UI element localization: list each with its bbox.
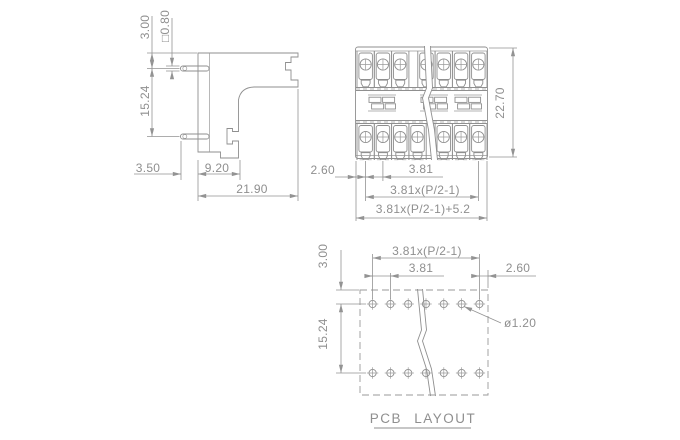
pcb-hole <box>474 367 485 378</box>
pcb-hole <box>438 298 449 309</box>
pcb-hole <box>403 298 414 309</box>
pcb-hole-row-bottom <box>367 367 485 378</box>
dim-side-total-depth: 21.90 <box>236 182 268 196</box>
pcb-hole <box>438 367 449 378</box>
side-pin-top <box>181 66 210 71</box>
pcb-hole <box>474 298 485 309</box>
pcb-hole <box>456 367 467 378</box>
terminal <box>452 51 469 88</box>
dim-pcb-row-offset: 3.00 <box>316 244 330 269</box>
terminal <box>357 124 374 161</box>
terminal <box>392 124 409 161</box>
wire-slots <box>454 95 482 111</box>
dim-front-height: 22.70 <box>493 87 507 119</box>
front-view: 22.70 2.60 3.81 3.81x(P/2-1) 3.81x(P/2-1… <box>310 46 517 221</box>
pcb-hole <box>385 367 396 378</box>
pcb-hole <box>367 298 378 309</box>
terminal <box>374 124 391 161</box>
pcb-hole <box>403 367 414 378</box>
dim-pcb-hole-diameter: ø1.20 <box>504 316 536 330</box>
dim-front-end-margin: 2.60 <box>310 163 335 177</box>
terminal <box>374 51 391 88</box>
terminal <box>452 124 469 161</box>
dim-pcb-end-margin: 2.60 <box>506 261 531 275</box>
dim-side-pin-offset: 3.00 <box>138 15 152 40</box>
terminal <box>392 51 409 88</box>
dim-pcb-pitch: 3.81 <box>409 261 434 275</box>
dim-front-pitch: 3.81 <box>409 162 434 176</box>
terminal <box>435 124 452 161</box>
technical-drawing-page: 3.00 □0.80 15.24 3.50 9.20 21.90 <box>0 0 680 440</box>
dim-side-pin-length: 3.50 <box>136 161 161 175</box>
dim-side-row-spacing: 15.24 <box>138 85 152 117</box>
pcb-layout-view: 3.81x(P/2-1) 3.81 2.60 3.00 15.24 ø1.20 … <box>316 244 536 428</box>
pcb-hole <box>385 298 396 309</box>
dim-pcb-hole-span: 3.81x(P/2-1) <box>392 244 462 258</box>
terminal <box>409 124 426 161</box>
terminal <box>435 51 452 88</box>
side-body-outline <box>198 53 298 158</box>
terminal <box>357 51 374 88</box>
pcb-hole <box>456 298 467 309</box>
side-pin-bottom <box>181 134 210 139</box>
terminal <box>470 124 487 161</box>
terminal <box>470 51 487 88</box>
dim-side-front-depth: 9.20 <box>205 161 230 175</box>
pcb-layout-title: PCB LAYOUT <box>370 411 477 426</box>
wire-slots <box>368 95 396 111</box>
dim-pcb-row-spacing: 15.24 <box>316 318 330 350</box>
dim-side-pin-square: □0.80 <box>158 10 172 42</box>
technical-drawing: 3.00 □0.80 15.24 3.50 9.20 21.90 <box>0 0 680 440</box>
dim-front-total-width: 3.81x(P/2-1)+5.2 <box>376 202 471 216</box>
pcb-hole <box>367 367 378 378</box>
dim-front-pin-span: 3.81x(P/2-1) <box>390 183 460 197</box>
side-view: 3.00 □0.80 15.24 3.50 9.20 21.90 <box>134 10 298 201</box>
